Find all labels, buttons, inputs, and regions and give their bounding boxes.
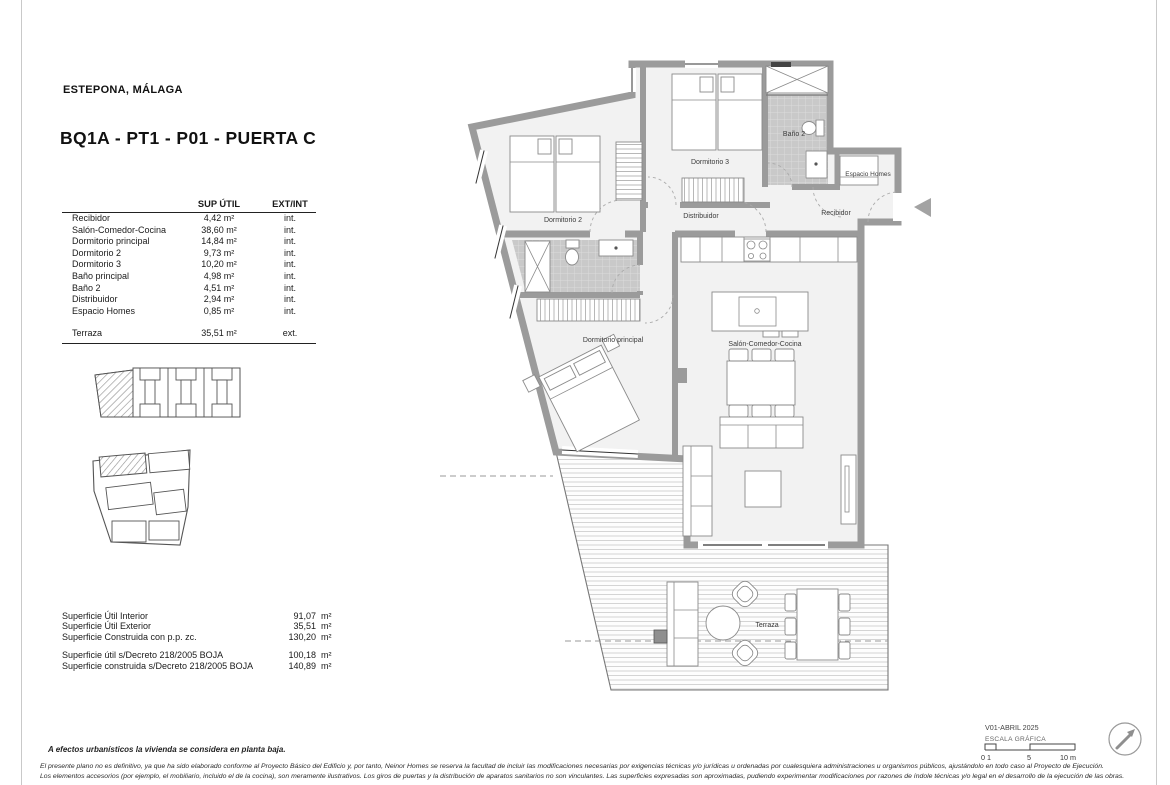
keyplan-elevation: [95, 368, 240, 417]
kitchen-counter: [681, 237, 857, 262]
label-espacio-homes: Espacio Homes: [845, 171, 891, 178]
highlighted-block: [99, 453, 147, 477]
pillow: [559, 139, 572, 154]
label-distribuidor: Distribuidor: [683, 213, 719, 220]
wardrobe: [616, 142, 642, 200]
scale-tick-10m: 10 m: [1060, 753, 1076, 762]
coffee-table: [745, 471, 781, 507]
outdoor-sofa: [667, 582, 698, 666]
round-table: [706, 606, 740, 640]
entrance-arrow-icon: [914, 198, 931, 217]
north-arrow-icon: [1109, 723, 1141, 755]
keyplan-site: [93, 450, 190, 545]
chaise: [683, 446, 712, 536]
pillow: [538, 139, 551, 154]
wardrobe: [682, 178, 744, 202]
version-label: V01-ABRIL 2025: [985, 723, 1039, 732]
scale-tick-0-1: 0 1: [981, 753, 991, 762]
toilet: [566, 240, 579, 248]
scale-tick-5: 5: [1027, 753, 1031, 762]
kitchen-island: [712, 292, 808, 331]
toilet: [816, 120, 824, 136]
outdoor-dining-table: [797, 589, 838, 660]
label-dormitorio2: Dormitorio 2: [544, 217, 582, 224]
tv-unit: [841, 455, 856, 524]
post: [654, 630, 667, 643]
pillar: [675, 368, 687, 383]
wardrobe: [537, 299, 640, 321]
pillow: [700, 77, 713, 92]
apartment-plan: Dormitorio 2 Dormitorio 3 Baño 2 Espacio…: [440, 60, 931, 690]
scale-label: ESCALA GRÁFICA: [985, 734, 1046, 743]
label-dormitorio3: Dormitorio 3: [691, 159, 729, 166]
highlighted-unit: [95, 370, 133, 417]
title-block: V01-ABRIL 2025 ESCALA GRÁFICA 0 1 5 10 m: [981, 723, 1141, 762]
stool: [782, 331, 798, 337]
pillow: [721, 77, 734, 92]
plan-drawing: Dormitorio 2 Dormitorio 3 Baño 2 Espacio…: [0, 0, 1170, 785]
stool: [763, 331, 779, 337]
dining-table: [727, 361, 795, 405]
label-dormitorio-principal: Dormitorio principal: [583, 337, 644, 344]
label-salon: Salón-Comedor-Cocina: [728, 341, 801, 348]
label-recibidor: Recibidor: [821, 210, 851, 217]
sofa: [720, 417, 803, 448]
label-terraza: Terraza: [755, 622, 778, 629]
label-bano2: Baño 2: [783, 131, 805, 138]
scale-bar: [985, 744, 1075, 750]
